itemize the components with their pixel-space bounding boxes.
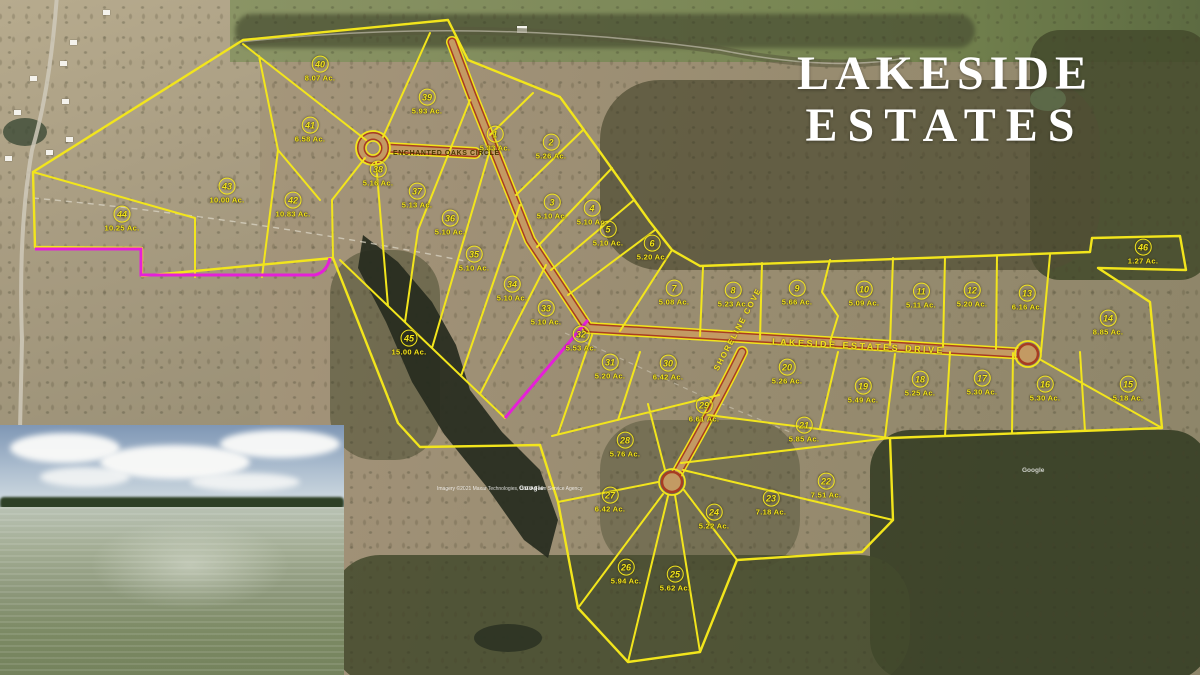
lot-marker-35: 355.10 Ac.: [459, 246, 489, 273]
lot-marker-26: 265.94 Ac.: [611, 559, 641, 586]
lot-acreage: 5.10 Ac.: [459, 264, 489, 273]
lot-marker-15: 155.18 Ac.: [1113, 376, 1143, 403]
lot-number: 4: [583, 200, 600, 217]
lot-marker-22: 227.51 Ac.: [811, 473, 841, 500]
lot-acreage: 5.09 Ac.: [849, 299, 879, 308]
google-watermark: Google: [519, 485, 544, 492]
lot-acreage: 5.20 Ac.: [957, 300, 987, 309]
lot-number: 6: [643, 235, 660, 252]
lot-marker-19: 195.49 Ac.: [848, 378, 878, 405]
lot-number: 25: [666, 566, 683, 583]
road-label-enchanted-oaks-circle: ENCHANTED OAKS CIRCLE: [393, 150, 500, 157]
lot-number: 2: [542, 134, 559, 151]
lot-number: 35: [465, 246, 482, 263]
lot-number: 14: [1099, 310, 1116, 327]
lot-acreage: 5.08 Ac.: [659, 298, 689, 307]
lot-marker-5: 55.10 Ac.: [593, 221, 623, 248]
lot-acreage: 5.10 Ac.: [435, 228, 465, 237]
lot-acreage: 5.93 Ac.: [412, 107, 442, 116]
lot-number: 42: [284, 192, 301, 209]
lot-acreage: 5.20 Ac.: [637, 253, 667, 262]
lot-acreage: 1.27 Ac.: [1128, 257, 1158, 266]
lot-marker-9: 95.66 Ac.: [782, 280, 812, 307]
lake-photo-inset: [0, 425, 344, 675]
lot-marker-36: 365.10 Ac.: [435, 210, 465, 237]
lot-marker-33: 335.10 Ac.: [531, 300, 561, 327]
lot-marker-44: 4410.25 Ac.: [105, 206, 140, 233]
lot-acreage: 5.26 Ac.: [772, 377, 802, 386]
lot-marker-8: 85.23 Ac.: [718, 282, 748, 309]
lot-marker-31: 315.20 Ac.: [595, 354, 625, 381]
google-watermark-2: Google: [1022, 467, 1044, 474]
lot-acreage: 5.20 Ac.: [595, 372, 625, 381]
lot-acreage: 5.13 Ac.: [402, 201, 432, 210]
lot-marker-30: 306.42 Ac.: [653, 355, 683, 382]
lot-acreage: 5.10 Ac.: [497, 294, 527, 303]
lot-marker-3: 35.10 Ac.: [537, 194, 567, 221]
lot-acreage: 5.30 Ac.: [1030, 394, 1060, 403]
lot-number: 15: [1119, 376, 1136, 393]
lot-number: 40: [311, 56, 328, 73]
lot-acreage: 5.11 Ac.: [906, 301, 936, 310]
lot-number: 34: [503, 276, 520, 293]
lot-number: 30: [659, 355, 676, 372]
lot-marker-42: 4210.83 Ac.: [276, 192, 311, 219]
lot-marker-23: 237.18 Ac.: [756, 490, 786, 517]
lot-marker-11: 115.11 Ac.: [906, 283, 936, 310]
lot-acreage: 5.30 Ac.: [967, 388, 997, 397]
lot-number: 29: [695, 397, 712, 414]
lot-marker-27: 276.42 Ac.: [595, 487, 625, 514]
lot-number: 7: [665, 280, 682, 297]
lot-acreage: 6.42 Ac.: [653, 373, 683, 382]
plat-map-screenshot: 15.33 Ac.25.26 Ac.35.10 Ac.45.10 Ac.55.1…: [0, 0, 1200, 675]
lot-marker-13: 136.16 Ac.: [1012, 285, 1042, 312]
lot-number: 22: [817, 473, 834, 490]
lot-marker-12: 125.20 Ac.: [957, 282, 987, 309]
lot-marker-34: 345.10 Ac.: [497, 276, 527, 303]
lot-number: 23: [762, 490, 779, 507]
lot-acreage: 5.49 Ac.: [848, 396, 878, 405]
cloud: [220, 430, 340, 458]
lot-number: 37: [408, 183, 425, 200]
lot-acreage: 5.16 Ac.: [363, 179, 393, 188]
lot-marker-16: 165.30 Ac.: [1030, 376, 1060, 403]
lot-acreage: 8.85 Ac.: [1093, 328, 1123, 337]
lot-number: 36: [441, 210, 458, 227]
lot-number: 3: [543, 194, 560, 211]
lot-number: 24: [705, 504, 722, 521]
lot-marker-28: 285.76 Ac.: [610, 432, 640, 459]
lot-marker-39: 395.93 Ac.: [412, 89, 442, 116]
lot-marker-46: 461.27 Ac.: [1128, 239, 1158, 266]
lot-number: 27: [601, 487, 618, 504]
lot-number: 13: [1018, 285, 1035, 302]
cloud: [40, 467, 130, 487]
lot-number: 43: [218, 178, 235, 195]
lot-marker-43: 4310.00 Ac.: [210, 178, 245, 205]
lot-marker-18: 185.25 Ac.: [905, 371, 935, 398]
lot-marker-20: 205.26 Ac.: [772, 359, 802, 386]
lot-number: 44: [113, 206, 130, 223]
lot-acreage: 5.18 Ac.: [1113, 394, 1143, 403]
title-line-2: ESTATES: [770, 98, 1120, 153]
lot-acreage: 5.66 Ac.: [782, 298, 812, 307]
lot-acreage: 5.85 Ac.: [789, 435, 819, 444]
lot-acreage: 6.58 Ac.: [295, 135, 325, 144]
lot-number: 10: [855, 281, 872, 298]
lot-acreage: 10.83 Ac.: [276, 210, 311, 219]
water-reflection: [90, 520, 290, 610]
lot-number: 41: [301, 117, 318, 134]
lot-acreage: 5.62 Ac.: [660, 584, 690, 593]
lot-number: 17: [973, 370, 990, 387]
subdivision-title: LAKESIDE ESTATES: [770, 50, 1120, 153]
lot-number: 8: [724, 282, 741, 299]
lot-marker-10: 105.09 Ac.: [849, 281, 879, 308]
lot-acreage: 5.94 Ac.: [611, 577, 641, 586]
lot-acreage: 5.26 Ac.: [536, 152, 566, 161]
lot-number: 9: [788, 280, 805, 297]
lot-marker-25: 255.62 Ac.: [660, 566, 690, 593]
lot-acreage: 6.16 Ac.: [1012, 303, 1042, 312]
lot-acreage: 5.10 Ac.: [537, 212, 567, 221]
lot-marker-41: 416.58 Ac.: [295, 117, 325, 144]
lot-marker-24: 245.22 Ac.: [699, 504, 729, 531]
lot-number: 16: [1036, 376, 1053, 393]
lot-acreage: 6.61 Ac.: [689, 415, 719, 424]
lot-number: 11: [913, 283, 930, 300]
lot-marker-1: 15.33 Ac.: [480, 126, 510, 153]
lot-marker-29: 296.61 Ac.: [689, 397, 719, 424]
lot-marker-21: 215.85 Ac.: [789, 417, 819, 444]
lot-number: 32: [572, 326, 589, 343]
lot-acreage: 10.25 Ac.: [105, 224, 140, 233]
lot-number: 39: [418, 89, 435, 106]
lot-number: 21: [795, 417, 812, 434]
lot-number: 12: [963, 282, 980, 299]
lot-marker-2: 25.26 Ac.: [536, 134, 566, 161]
lot-number: 31: [601, 354, 618, 371]
lot-number: 38: [369, 161, 386, 178]
lot-marker-38: 385.16 Ac.: [363, 161, 393, 188]
lot-marker-7: 75.08 Ac.: [659, 280, 689, 307]
title-line-1: LAKESIDE: [770, 50, 1120, 98]
lot-acreage: 8.07 Ac.: [305, 74, 335, 83]
lot-number: 33: [537, 300, 554, 317]
lot-acreage: 5.10 Ac.: [531, 318, 561, 327]
lot-acreage: 5.25 Ac.: [905, 389, 935, 398]
lot-acreage: 5.76 Ac.: [610, 450, 640, 459]
lot-marker-6: 65.20 Ac.: [637, 235, 667, 262]
lot-number: 1: [486, 126, 503, 143]
lot-acreage: 6.42 Ac.: [595, 505, 625, 514]
lot-number: 18: [911, 371, 928, 388]
lot-marker-32: 325.53 Ac.: [566, 326, 596, 353]
lot-acreage: 7.51 Ac.: [811, 491, 841, 500]
lot-number: 26: [617, 559, 634, 576]
lot-marker-14: 148.85 Ac.: [1093, 310, 1123, 337]
lot-number: 5: [599, 221, 616, 238]
lot-acreage: 15.00 Ac.: [392, 348, 427, 357]
lot-acreage: 7.18 Ac.: [756, 508, 786, 517]
lot-acreage: 5.53 Ac.: [566, 344, 596, 353]
lot-marker-40: 408.07 Ac.: [305, 56, 335, 83]
lot-acreage: 5.22 Ac.: [699, 522, 729, 531]
lot-marker-45: 4515.00 Ac.: [392, 330, 427, 357]
lot-acreage: 5.10 Ac.: [593, 239, 623, 248]
lot-number: 19: [854, 378, 871, 395]
lot-marker-37: 375.13 Ac.: [402, 183, 432, 210]
lot-number: 45: [400, 330, 417, 347]
lot-acreage: 10.00 Ac.: [210, 196, 245, 205]
lot-number: 20: [778, 359, 795, 376]
imagery-credit: Imagery ©2021 Maxar Technologies, USDA F…: [437, 486, 582, 492]
lot-marker-17: 175.30 Ac.: [967, 370, 997, 397]
lot-number: 46: [1134, 239, 1151, 256]
cloud: [190, 473, 300, 491]
lot-number: 28: [616, 432, 633, 449]
